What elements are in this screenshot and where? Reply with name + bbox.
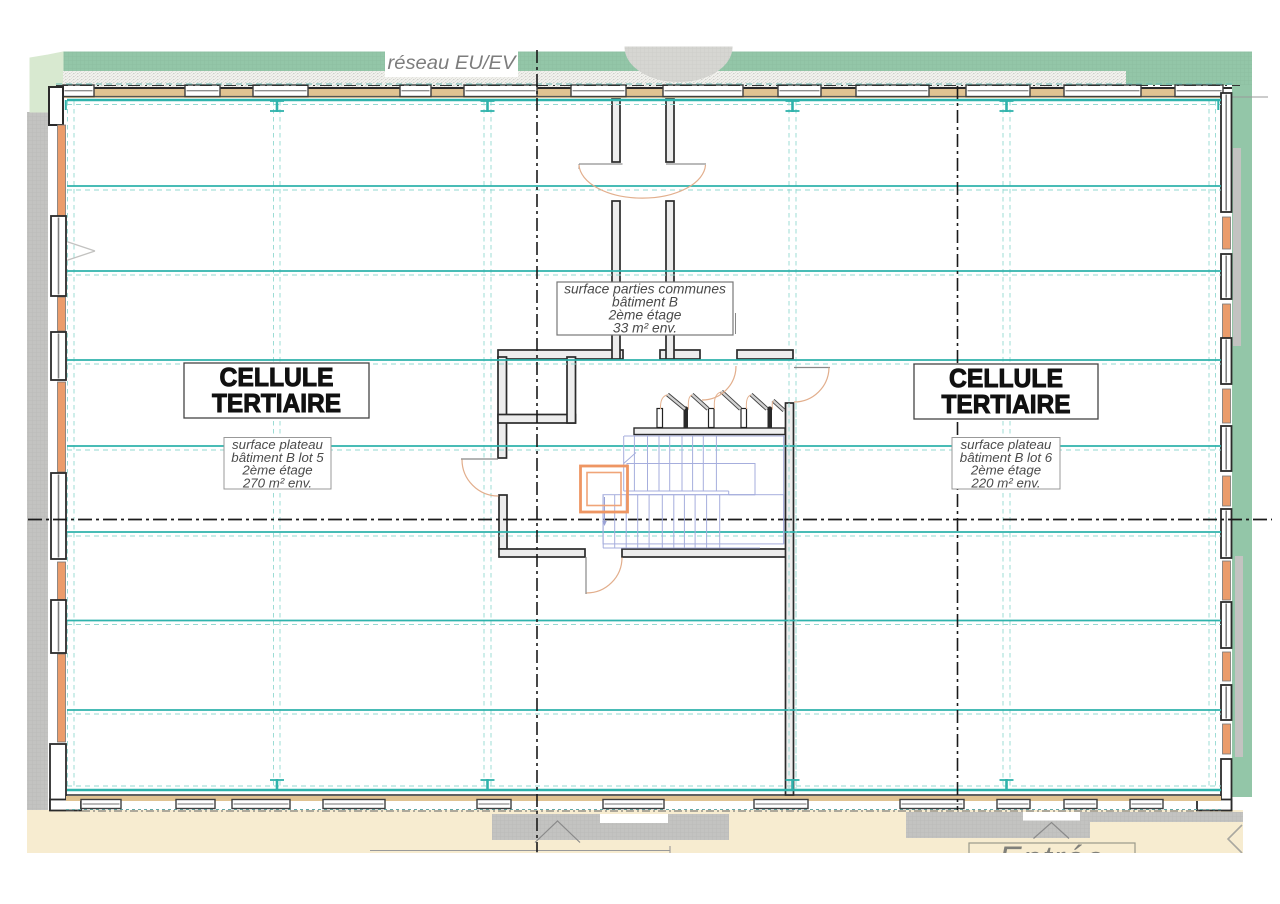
svg-text:TERTIAIRE: TERTIAIRE <box>942 389 1071 419</box>
svg-text:TERTIAIRE: TERTIAIRE <box>212 388 341 418</box>
svg-text:réseau EU/EV: réseau EU/EV <box>388 53 518 74</box>
svg-text:220 m² env.: 220 m² env. <box>970 475 1040 490</box>
svg-text:33 m² env.: 33 m² env. <box>613 321 677 336</box>
svg-text:270 m² env.: 270 m² env. <box>242 475 312 490</box>
